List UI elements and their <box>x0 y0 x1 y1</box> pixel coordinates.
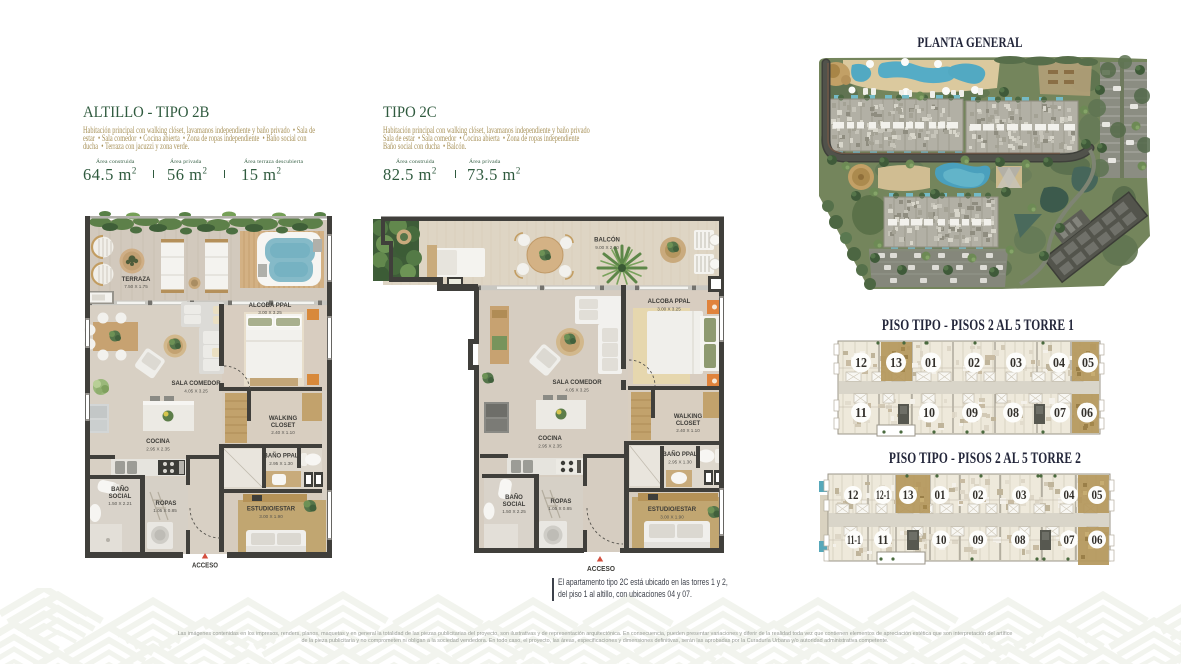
svg-text:09: 09 <box>973 533 984 547</box>
svg-text:CLOSET: CLOSET <box>676 421 701 427</box>
svg-text:09: 09 <box>966 405 978 420</box>
svg-text:2.95 X 2.35: 2.95 X 2.35 <box>538 444 562 449</box>
svg-text:3.00 X 3.25: 3.00 X 3.25 <box>258 310 282 315</box>
svg-text:07: 07 <box>1054 405 1066 420</box>
svg-text:06: 06 <box>1081 405 1093 420</box>
svg-text:TERRAZA: TERRAZA <box>122 277 151 283</box>
svg-text:12: 12 <box>848 488 859 502</box>
svg-text:05: 05 <box>1092 488 1103 502</box>
svg-text:BAÑO PPAL: BAÑO PPAL <box>663 451 698 458</box>
svg-text:11-1: 11-1 <box>847 533 861 547</box>
svg-text:BALCÓN: BALCÓN <box>594 236 620 244</box>
svg-text:03: 03 <box>1016 488 1027 502</box>
svg-text:10: 10 <box>923 405 935 420</box>
svg-text:SOCIAL: SOCIAL <box>503 502 526 508</box>
svg-text:BAÑO: BAÑO <box>111 486 129 493</box>
svg-text:ALCOBA PPAL: ALCOBA PPAL <box>249 303 292 309</box>
svg-text:ROPAS: ROPAS <box>551 499 572 505</box>
svg-text:03: 03 <box>1010 355 1022 370</box>
svg-text:3.00 X 3.25: 3.00 X 3.25 <box>657 307 681 312</box>
svg-text:06: 06 <box>1092 533 1103 547</box>
svg-text:11: 11 <box>878 533 889 547</box>
svg-text:SOCIAL: SOCIAL <box>109 494 132 500</box>
svg-text:WALKING: WALKING <box>269 416 298 422</box>
svg-text:2.40 X 1.10: 2.40 X 1.10 <box>271 430 295 435</box>
svg-text:04: 04 <box>1053 355 1065 370</box>
svg-text:9.00 X 2.00: 9.00 X 2.00 <box>595 245 619 250</box>
svg-text:ESTUDIO/ESTAR: ESTUDIO/ESTAR <box>247 507 296 513</box>
svg-text:7.50 X 1.75: 7.50 X 1.75 <box>124 284 148 289</box>
svg-text:07: 07 <box>1064 533 1075 547</box>
svg-text:1.50 X 2.25: 1.50 X 2.25 <box>502 509 526 514</box>
svg-text:04: 04 <box>1064 488 1076 502</box>
svg-text:BAÑO: BAÑO <box>505 494 523 501</box>
svg-text:08: 08 <box>1007 405 1019 420</box>
svg-text:ALCOBA PPAL: ALCOBA PPAL <box>648 299 691 305</box>
svg-text:1.05 X 0.85: 1.05 X 0.85 <box>548 506 572 511</box>
svg-text:08: 08 <box>1015 533 1026 547</box>
svg-text:1.05 X 0.85: 1.05 X 0.85 <box>153 508 177 513</box>
svg-text:11: 11 <box>855 405 867 420</box>
svg-text:COCINA: COCINA <box>146 439 170 445</box>
svg-text:COCINA: COCINA <box>538 436 562 442</box>
svg-text:12-1: 12-1 <box>876 488 890 502</box>
svg-text:ACCESO: ACCESO <box>587 564 615 573</box>
svg-text:3.00 X 1.90: 3.00 X 1.90 <box>259 514 283 519</box>
svg-text:01: 01 <box>935 488 946 502</box>
svg-text:WALKING: WALKING <box>674 414 703 420</box>
svg-text:2.95 X 1.30: 2.95 X 1.30 <box>668 460 692 465</box>
svg-text:BAÑO PPAL: BAÑO PPAL <box>264 453 299 460</box>
svg-text:4.05 X 3.25: 4.05 X 3.25 <box>565 388 589 393</box>
svg-text:12: 12 <box>855 355 867 370</box>
svg-text:13: 13 <box>890 355 902 370</box>
svg-text:10: 10 <box>936 533 947 547</box>
svg-text:1.50 X 2.21: 1.50 X 2.21 <box>108 501 132 506</box>
svg-text:SALA COMEDOR: SALA COMEDOR <box>171 381 221 387</box>
svg-text:02: 02 <box>973 488 984 502</box>
svg-text:13: 13 <box>903 488 914 502</box>
svg-text:2.95 X 2.35: 2.95 X 2.35 <box>146 447 170 452</box>
svg-text:01: 01 <box>925 355 937 370</box>
svg-text:ROPAS: ROPAS <box>156 501 177 507</box>
svg-text:2.95 X 1.30: 2.95 X 1.30 <box>269 461 293 466</box>
svg-text:ACCESO: ACCESO <box>192 561 218 570</box>
svg-text:05: 05 <box>1082 355 1094 370</box>
svg-text:ESTUDIO/ESTAR: ESTUDIO/ESTAR <box>648 507 697 513</box>
svg-text:2.40 X 1.10: 2.40 X 1.10 <box>676 428 700 433</box>
svg-text:02: 02 <box>968 355 980 370</box>
svg-text:CLOSET: CLOSET <box>271 423 296 429</box>
svg-text:SALA COMEDOR: SALA COMEDOR <box>552 380 602 386</box>
svg-text:3.00 X 1.90: 3.00 X 1.90 <box>660 515 684 520</box>
svg-text:4.05 X 3.25: 4.05 X 3.25 <box>184 389 208 394</box>
